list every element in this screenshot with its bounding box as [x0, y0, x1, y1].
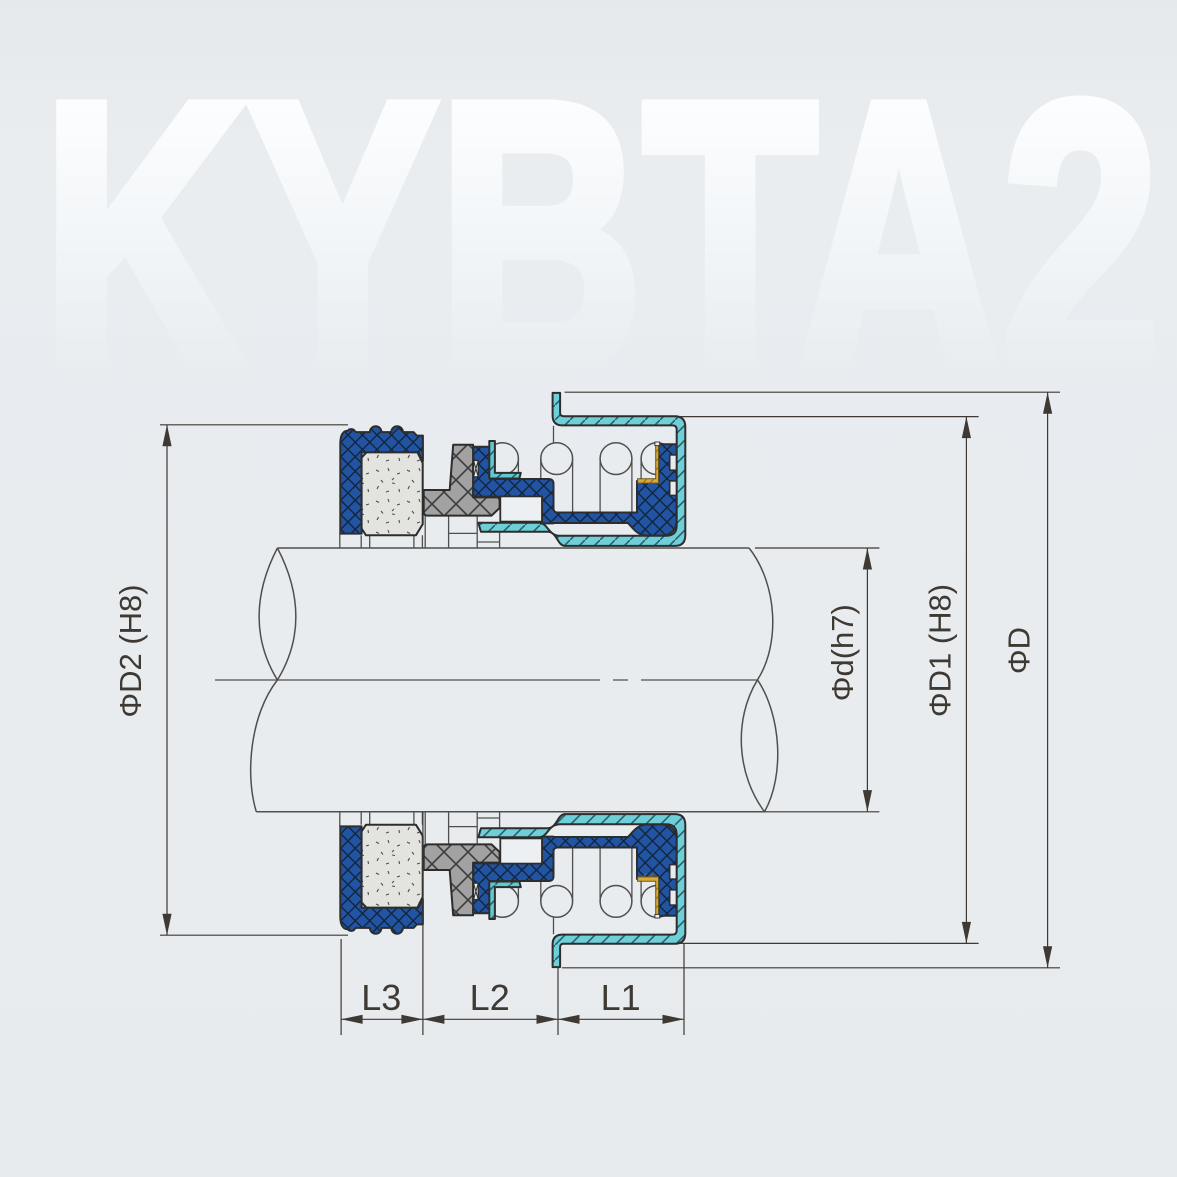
svg-text:ΦD: ΦD — [1002, 627, 1037, 674]
svg-text:ΦD2 (H8): ΦD2 (H8) — [113, 584, 148, 717]
svg-text:ΦD1 (H8): ΦD1 (H8) — [923, 584, 958, 717]
svg-text:Φd(h7): Φd(h7) — [825, 604, 860, 701]
svg-text:L1: L1 — [601, 977, 641, 1018]
svg-text:L2: L2 — [470, 977, 510, 1018]
svg-text:KYBTA2: KYBTA2 — [42, 23, 1160, 452]
svg-text:L3: L3 — [361, 977, 401, 1018]
